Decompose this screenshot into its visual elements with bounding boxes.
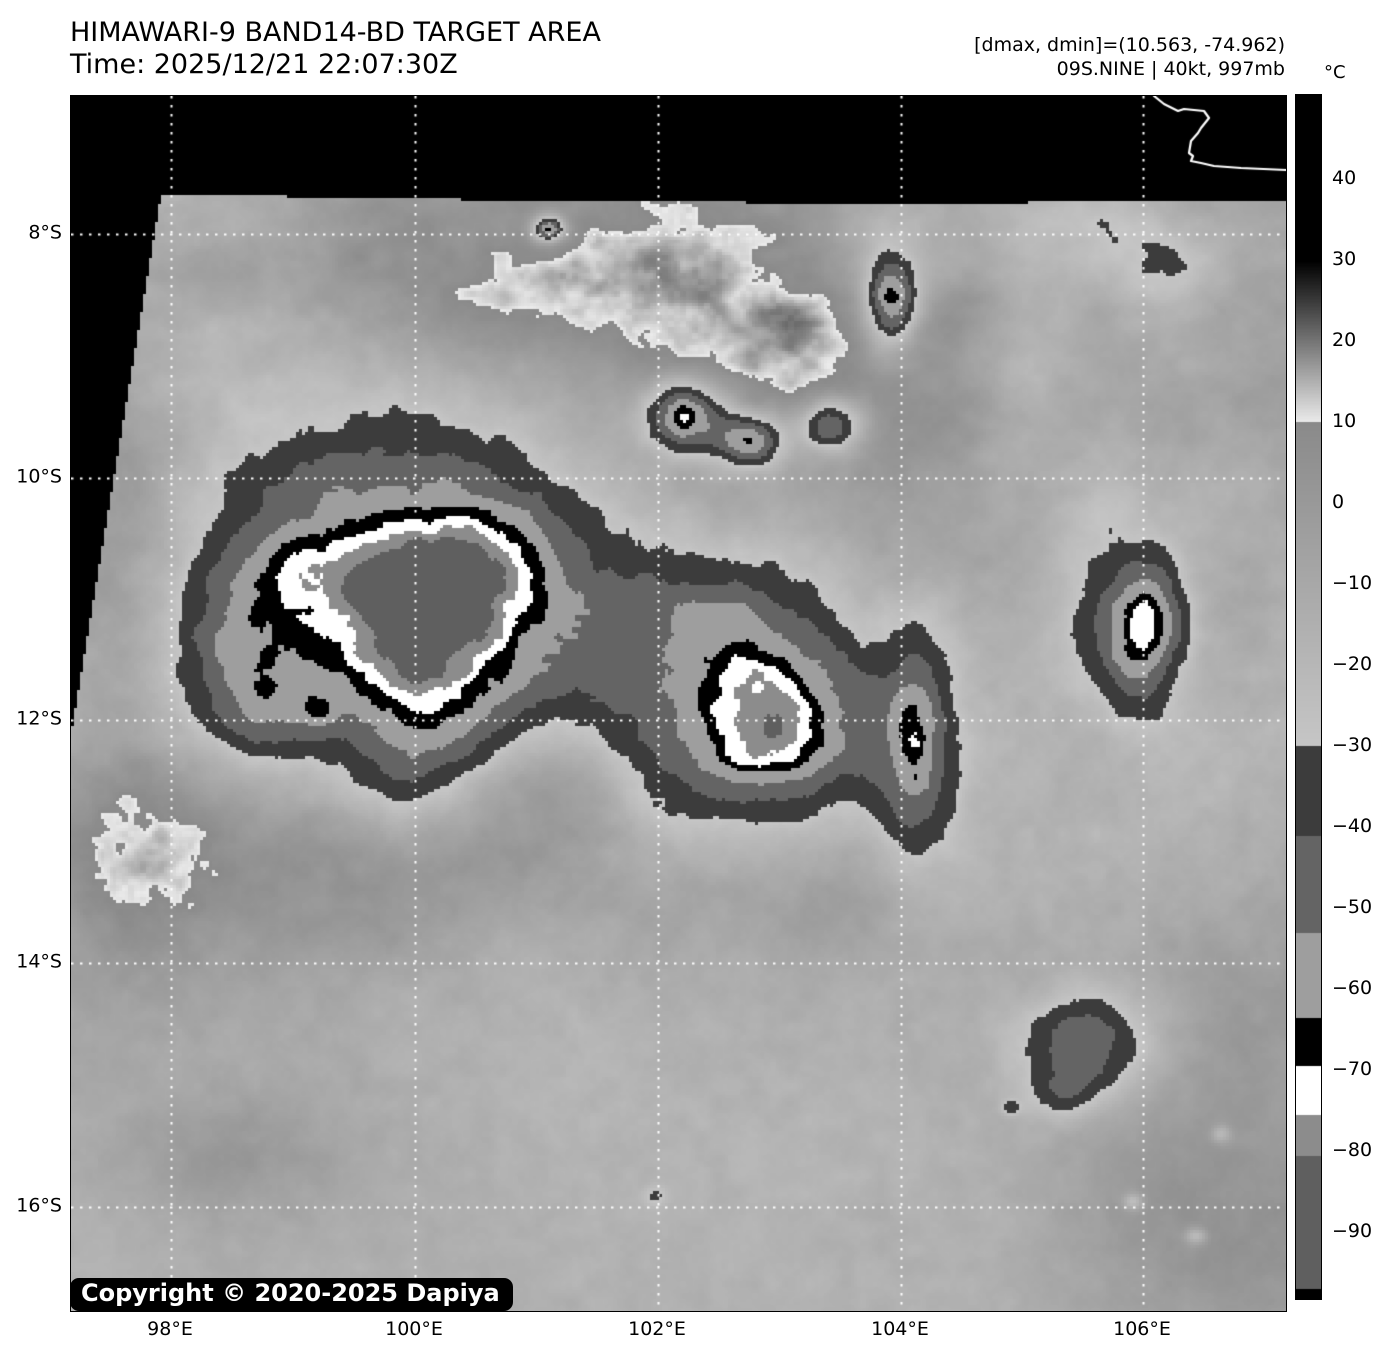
lat-tick-label: 14°S <box>0 951 62 973</box>
figure-timestamp: Time: 2025/12/21 22:07:30Z <box>70 50 458 80</box>
copyright-badge: Copyright © 2020-2025 Dapiya <box>70 1278 513 1311</box>
lon-tick-label: 100°E <box>385 1318 443 1340</box>
colorbar-canvas <box>1295 94 1322 1300</box>
lon-tick-label: 106°E <box>1113 1318 1171 1340</box>
dmax-dmin-readout: [dmax, dmin]=(10.563, -74.962) <box>974 34 1285 56</box>
colorbar-tick-label: −80 <box>1332 1139 1372 1161</box>
figure: HIMAWARI-9 BAND14-BD TARGET AREA Time: 2… <box>0 0 1388 1359</box>
colorbar-tick-label: 20 <box>1332 329 1356 351</box>
colorbar-tick-label: −50 <box>1332 896 1372 918</box>
colorbar-unit-label: °C <box>1324 62 1346 83</box>
colorbar-tick-label: 0 <box>1332 491 1344 513</box>
colorbar-tick-label: 10 <box>1332 410 1356 432</box>
colorbar-tick-label: −40 <box>1332 815 1372 837</box>
lon-tick-label: 102°E <box>628 1318 686 1340</box>
lat-tick-label: 10°S <box>0 466 62 488</box>
colorbar-tick-label: −20 <box>1332 653 1372 675</box>
figure-title: HIMAWARI-9 BAND14-BD TARGET AREA <box>70 18 601 48</box>
colorbar-tick-label: −10 <box>1332 572 1372 594</box>
colorbar-tick-label: 30 <box>1332 248 1356 270</box>
storm-info-readout: 09S.NINE | 40kt, 997mb <box>1057 58 1285 80</box>
colorbar-tick-label: 40 <box>1332 167 1356 189</box>
colorbar-tick-label: −30 <box>1332 734 1372 756</box>
lat-tick-label: 12°S <box>0 708 62 730</box>
lon-tick-label: 98°E <box>147 1318 193 1340</box>
colorbar-tick-label: −60 <box>1332 977 1372 999</box>
satellite-map-canvas <box>70 95 1287 1312</box>
colorbar-tick-label: −70 <box>1332 1058 1372 1080</box>
lat-tick-label: 8°S <box>0 222 62 244</box>
colorbar-tick-label: −90 <box>1332 1220 1372 1242</box>
lon-tick-label: 104°E <box>871 1318 929 1340</box>
lat-tick-label: 16°S <box>0 1195 62 1217</box>
